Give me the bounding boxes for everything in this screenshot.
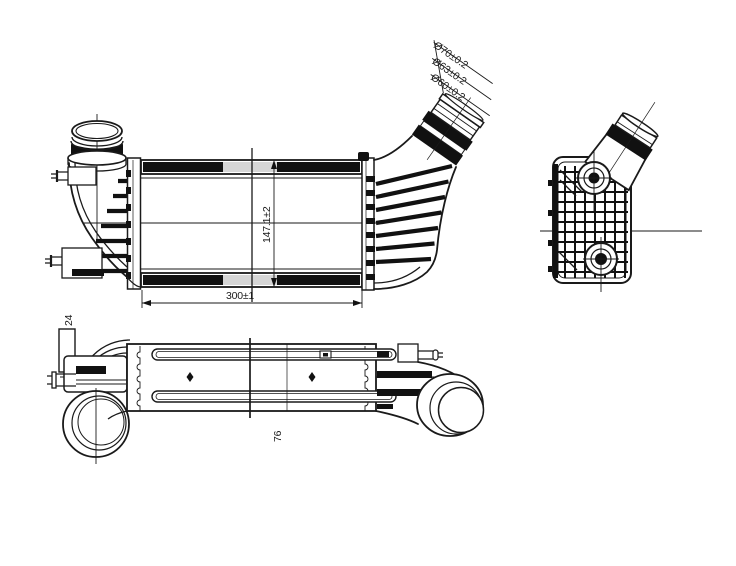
dim-label-core-height: 147.1±2	[261, 206, 273, 243]
bottom-pin-body	[52, 257, 62, 265]
side-header-edge	[553, 164, 558, 278]
core-bottom-bar-left	[143, 275, 223, 285]
right-pin-cap	[433, 350, 438, 360]
left-stub-tip	[47, 376, 52, 384]
right-pin-tip	[438, 353, 443, 357]
dim-label-core-length: 300±1	[226, 290, 254, 302]
drawing-canvas: Ø60±0.2 Ø63±0.2 Ø70±0.2 147.1±2 300±1	[0, 0, 736, 566]
front-length-dimension: 300±1	[142, 290, 362, 308]
core-top-bar-left	[143, 162, 223, 172]
side-view	[540, 88, 702, 292]
right-tank-top-wall	[374, 136, 412, 160]
right-bar-2	[377, 371, 432, 378]
front-top-pin	[51, 167, 96, 185]
bottom-slot-clip-core	[323, 353, 328, 357]
core-bottom-bar-right	[277, 275, 360, 285]
right-bar-4	[377, 404, 393, 409]
right-header-clip	[358, 152, 369, 161]
bottom-bracket-bar	[72, 269, 104, 276]
front-right-tank	[358, 136, 456, 290]
right-tank-ribs	[376, 166, 452, 262]
right-pin-bracket	[398, 344, 418, 362]
front-view: Ø60±0.2 Ø63±0.2 Ø70±0.2 147.1±2 300±1	[45, 38, 509, 308]
top-pin-body	[58, 172, 68, 180]
bottom-left-pipe-opening	[63, 388, 129, 464]
front-bottom-pin	[45, 248, 104, 278]
dim-label-bracket-width: 24	[63, 314, 75, 326]
bottom-bottom-slot	[152, 391, 396, 402]
core-top-bar-right	[277, 162, 360, 172]
right-pin-body	[418, 351, 433, 359]
technical-drawing-page: Ø60±0.2 Ø63±0.2 Ø70±0.2 147.1±2 300±1	[0, 0, 736, 566]
side-header-ticks	[548, 180, 552, 272]
front-height-dimension: 147.1±2	[261, 160, 277, 287]
left-stub-cap	[52, 372, 56, 388]
right-pipe-bottom-curve	[376, 411, 418, 424]
dim-label-body-depth: 76	[272, 430, 284, 442]
inlet-flange	[68, 151, 126, 165]
bottom-top-slot	[152, 349, 396, 360]
right-opening-inner	[439, 388, 484, 433]
bottom-body	[127, 338, 396, 418]
top-pin-bracket	[68, 167, 96, 185]
front-outlet-pipe: Ø60±0.2 Ø63±0.2 Ø70±0.2	[376, 38, 510, 176]
left-tank-bar	[76, 366, 106, 374]
core-top-bar-gap	[223, 162, 277, 172]
bottom-view: 24	[47, 314, 484, 464]
right-bar-1	[377, 351, 389, 357]
core-bottom-bar-gap	[223, 275, 277, 285]
